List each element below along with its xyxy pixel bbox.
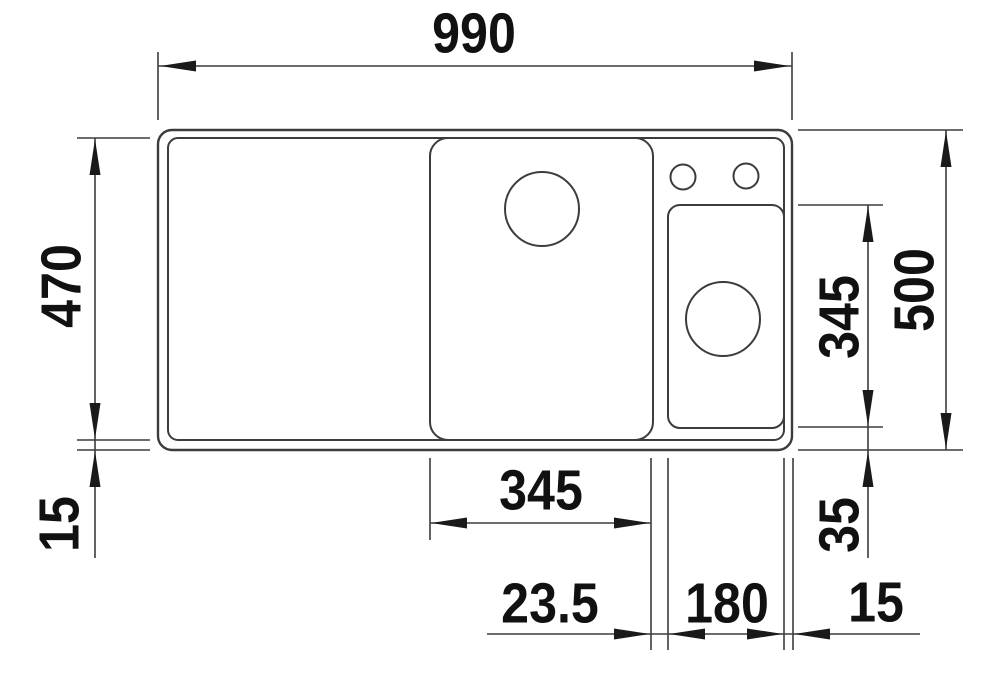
arrow-down-icon [863, 390, 874, 426]
arrow-up-icon [863, 451, 874, 487]
arrow-up-icon [863, 206, 874, 242]
sink-inner-rim [168, 138, 784, 440]
dim-divider-width-label: 23.5 [501, 576, 599, 633]
tap-hole-right [734, 164, 759, 189]
arrow-down-icon [90, 403, 101, 439]
dim-half-bowl-width-label: 180 [685, 576, 769, 633]
arrow-left-icon [431, 518, 467, 529]
arrow-up-icon [90, 139, 101, 175]
tap-hole-left [671, 165, 696, 190]
main-bowl-drain-hole [505, 172, 579, 246]
dim-inner-depth-label: 470 [34, 244, 91, 328]
dim-front-rim-label: 15 [32, 496, 89, 552]
arrow-right-icon [754, 61, 790, 72]
arrow-up-icon [90, 451, 101, 487]
dim-main-bowl-width-label: 345 [499, 463, 583, 520]
arrow-left-icon [794, 629, 830, 640]
dim-overall-depth-label: 500 [887, 248, 944, 332]
sink-dimension-drawing: 990 470 15 500 345 35 345 23.5 180 15 [0, 0, 990, 675]
arrow-right-icon [614, 518, 650, 529]
main-bowl [430, 138, 653, 440]
arrow-right-icon [614, 629, 650, 640]
dim-overall-width-label: 990 [432, 6, 516, 63]
half-bowl-drain-hole [686, 282, 760, 356]
arrow-up-icon [941, 131, 952, 167]
dim-bottom-rim-label: 35 [812, 497, 869, 553]
sink-outer-outline [158, 130, 792, 450]
dim-side-rim-label: 15 [848, 575, 904, 632]
arrow-left-icon [160, 61, 196, 72]
arrow-down-icon [941, 413, 952, 449]
dim-half-bowl-depth-label: 345 [812, 275, 869, 359]
